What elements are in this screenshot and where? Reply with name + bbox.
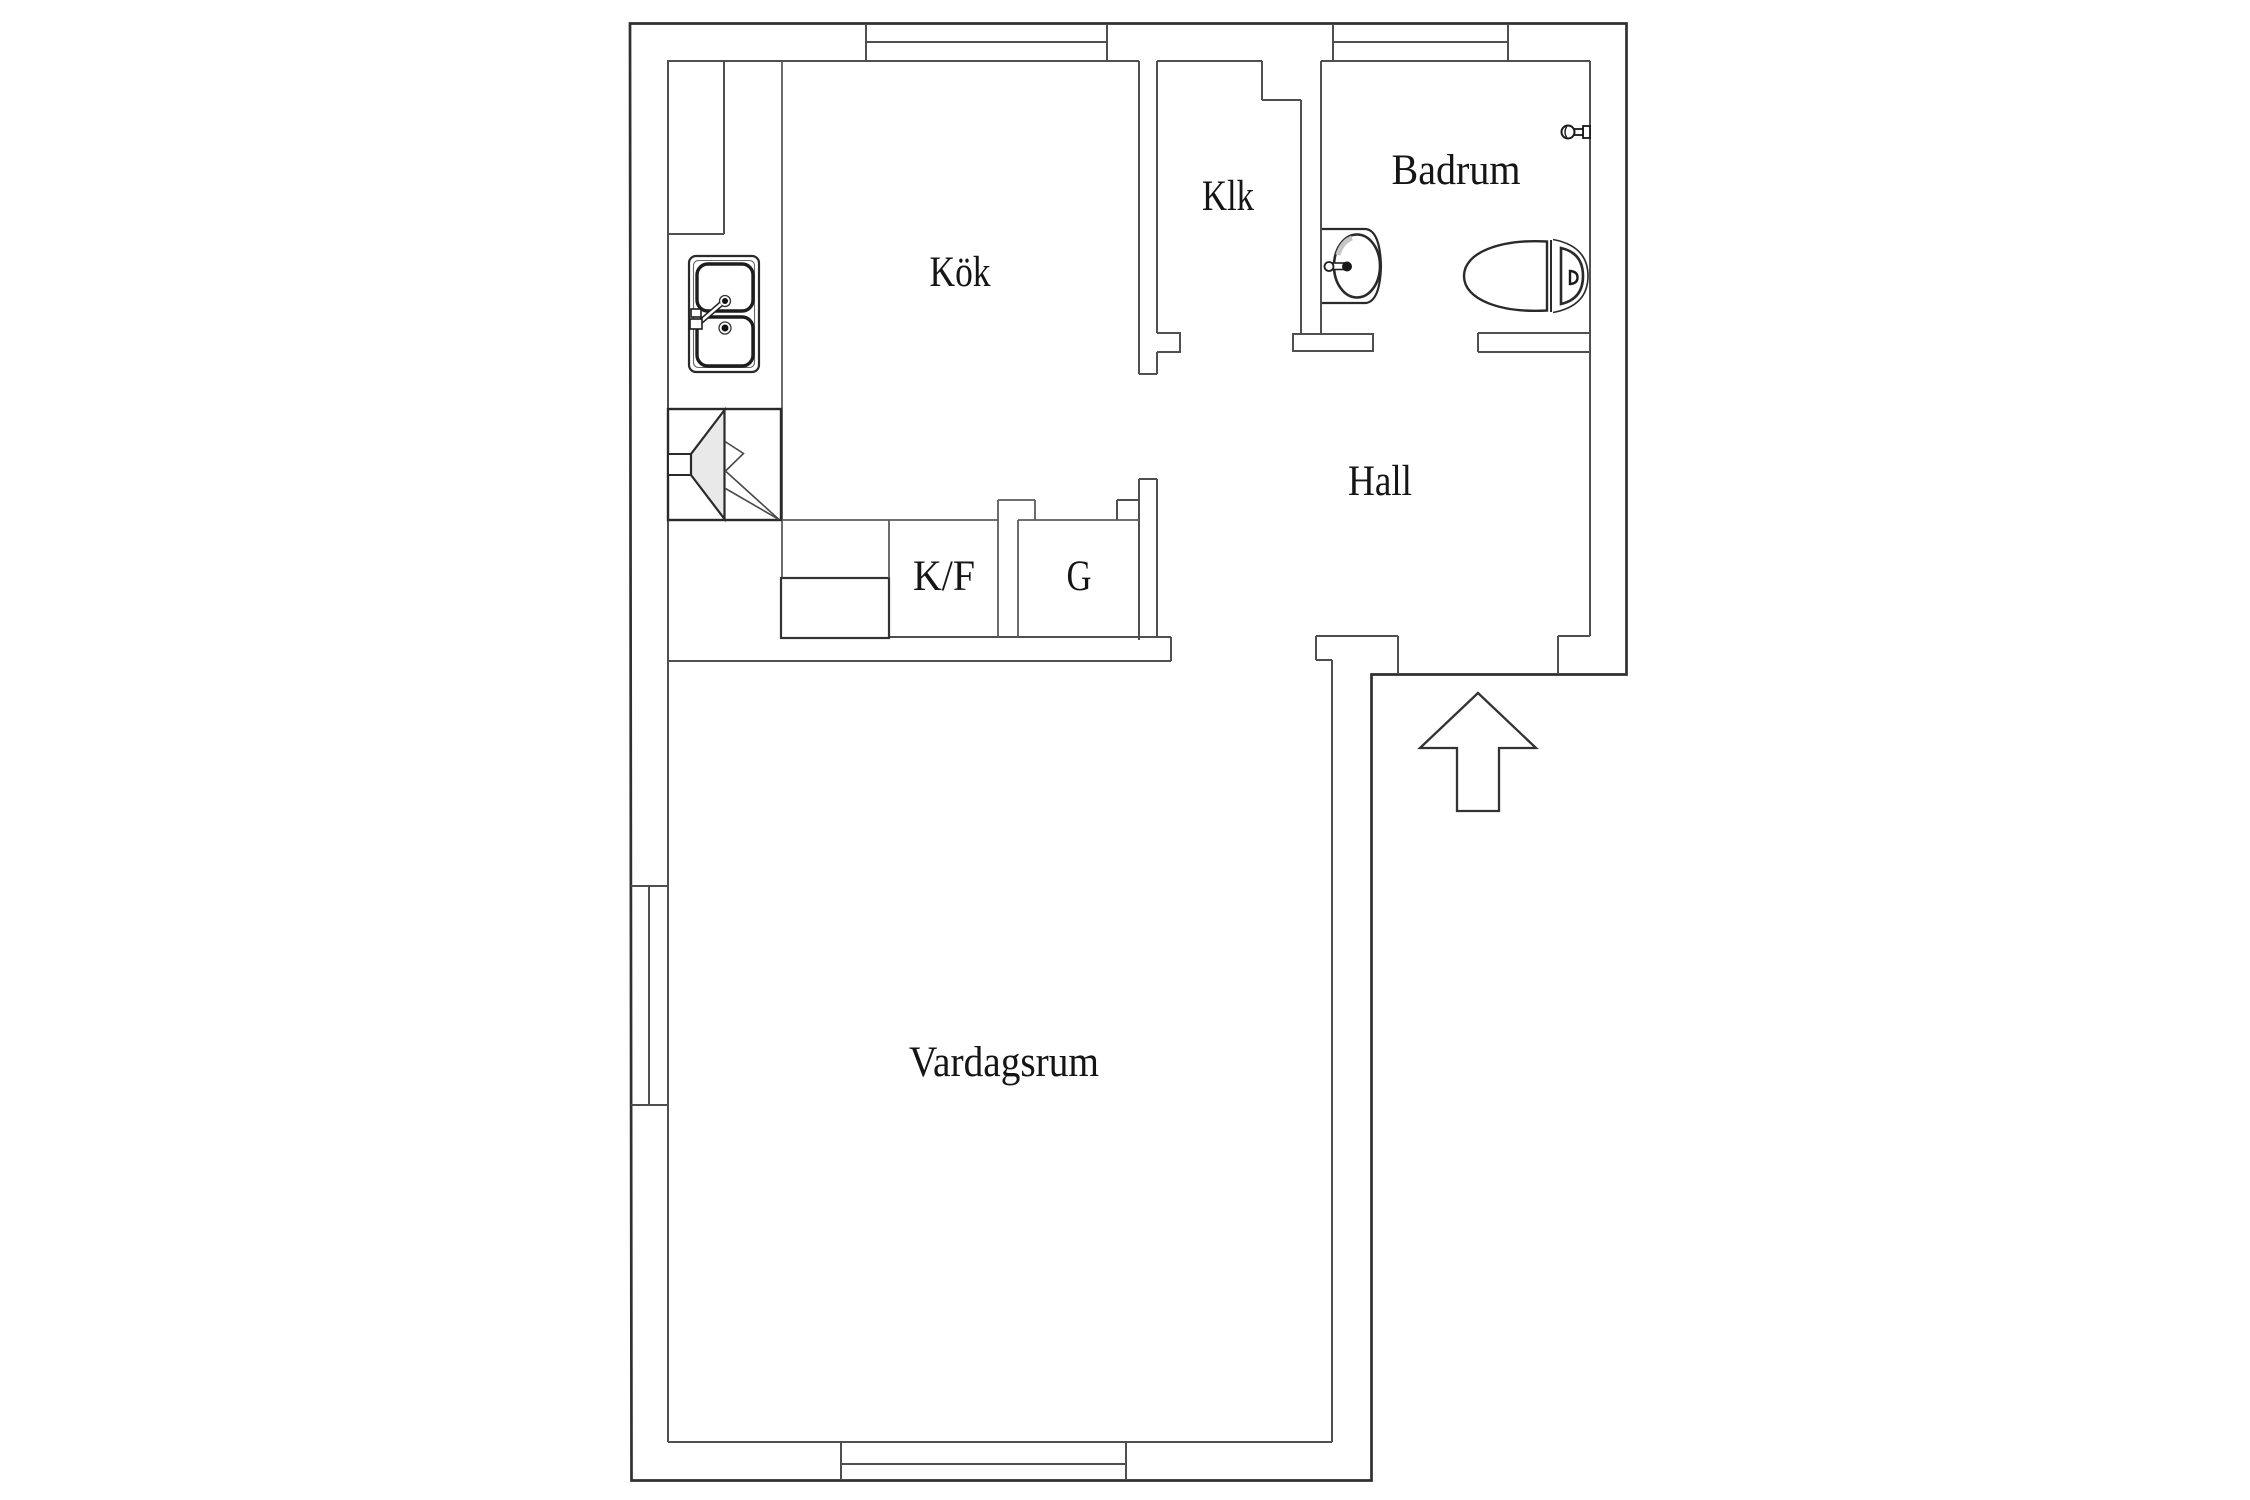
- svg-text:Hall: Hall: [1348, 458, 1412, 505]
- svg-text:Kök: Kök: [930, 249, 991, 296]
- svg-text:Badrum: Badrum: [1392, 147, 1521, 194]
- svg-text:G: G: [1067, 553, 1092, 600]
- svg-text:Klk: Klk: [1202, 173, 1254, 220]
- svg-text:K/F: K/F: [913, 553, 975, 600]
- svg-text:Vardagsrum: Vardagsrum: [909, 1039, 1099, 1086]
